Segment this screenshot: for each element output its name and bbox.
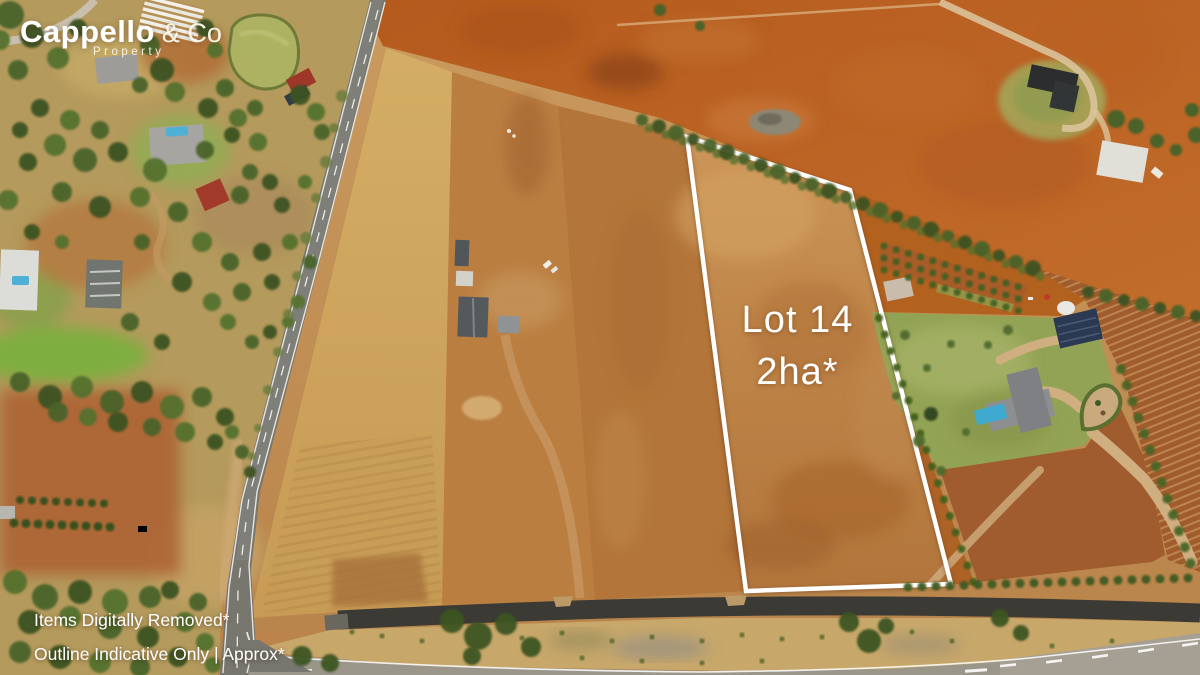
aerial-photo: Cappello & Co Property Lot 14 2ha* Items… (0, 0, 1200, 675)
lot-title-label: Lot 14 (700, 299, 895, 342)
brand-logo: Cappello & Co Property (20, 14, 250, 50)
brand-suffix: & Co (162, 18, 222, 49)
brand-tagline: Property (93, 46, 164, 58)
brand-name: Cappello (20, 14, 155, 50)
disclaimer-outline-indicative: Outline Indicative Only | Approx* (34, 644, 285, 665)
lot-area-label: 2ha* (700, 351, 895, 394)
disclaimer-items-removed: Items Digitally Removed* (34, 610, 229, 631)
aerial-scene (0, 0, 1200, 675)
